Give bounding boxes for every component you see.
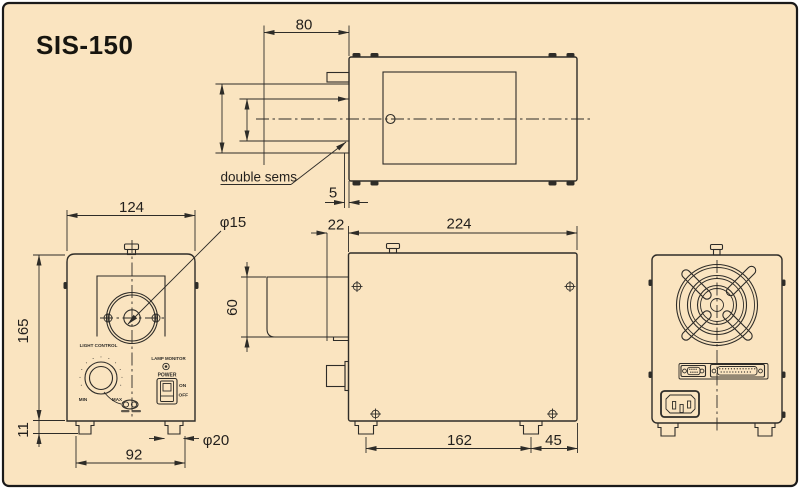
front-edge-bump-left <box>64 282 68 289</box>
power-label: POWER <box>158 373 177 379</box>
light-control-label: LIGHT CONTROL <box>80 343 118 348</box>
min-label: MIN <box>79 397 88 402</box>
on-label: ON <box>179 383 187 389</box>
dim-60-label: 60 <box>224 299 241 316</box>
dim-80-label: 80 <box>296 17 313 34</box>
lamp-monitor-label: LAMP MONITOR <box>151 356 186 361</box>
dim-224-label: 224 <box>446 216 471 233</box>
dim-165-label: 165 <box>15 318 32 343</box>
max-label: MAX <box>112 397 123 402</box>
double-sems-label: double sems <box>221 170 298 185</box>
dim-5-label: 5 <box>329 185 337 202</box>
dim-162-label: 162 <box>447 432 472 449</box>
dia-20-label: φ20 <box>203 432 229 449</box>
dim-11-label: 11 <box>15 422 32 438</box>
illegible-label-mark <box>132 410 142 412</box>
dim-45-label: 45 <box>545 432 562 449</box>
dia-15-label: φ15 <box>220 214 246 231</box>
dim-124-label: 124 <box>119 199 144 216</box>
technical-drawing: SIS-150 <box>0 0 800 489</box>
page-title: SIS-150 <box>36 30 133 60</box>
dim-22-label: 22 <box>328 217 345 234</box>
drawing-sheet: SIS-150 <box>0 0 800 489</box>
front-edge-bump-right <box>195 282 199 289</box>
illegible-label-mark <box>121 410 130 412</box>
dim-92-label: 92 <box>126 447 143 464</box>
off-label: OFF <box>179 393 189 399</box>
